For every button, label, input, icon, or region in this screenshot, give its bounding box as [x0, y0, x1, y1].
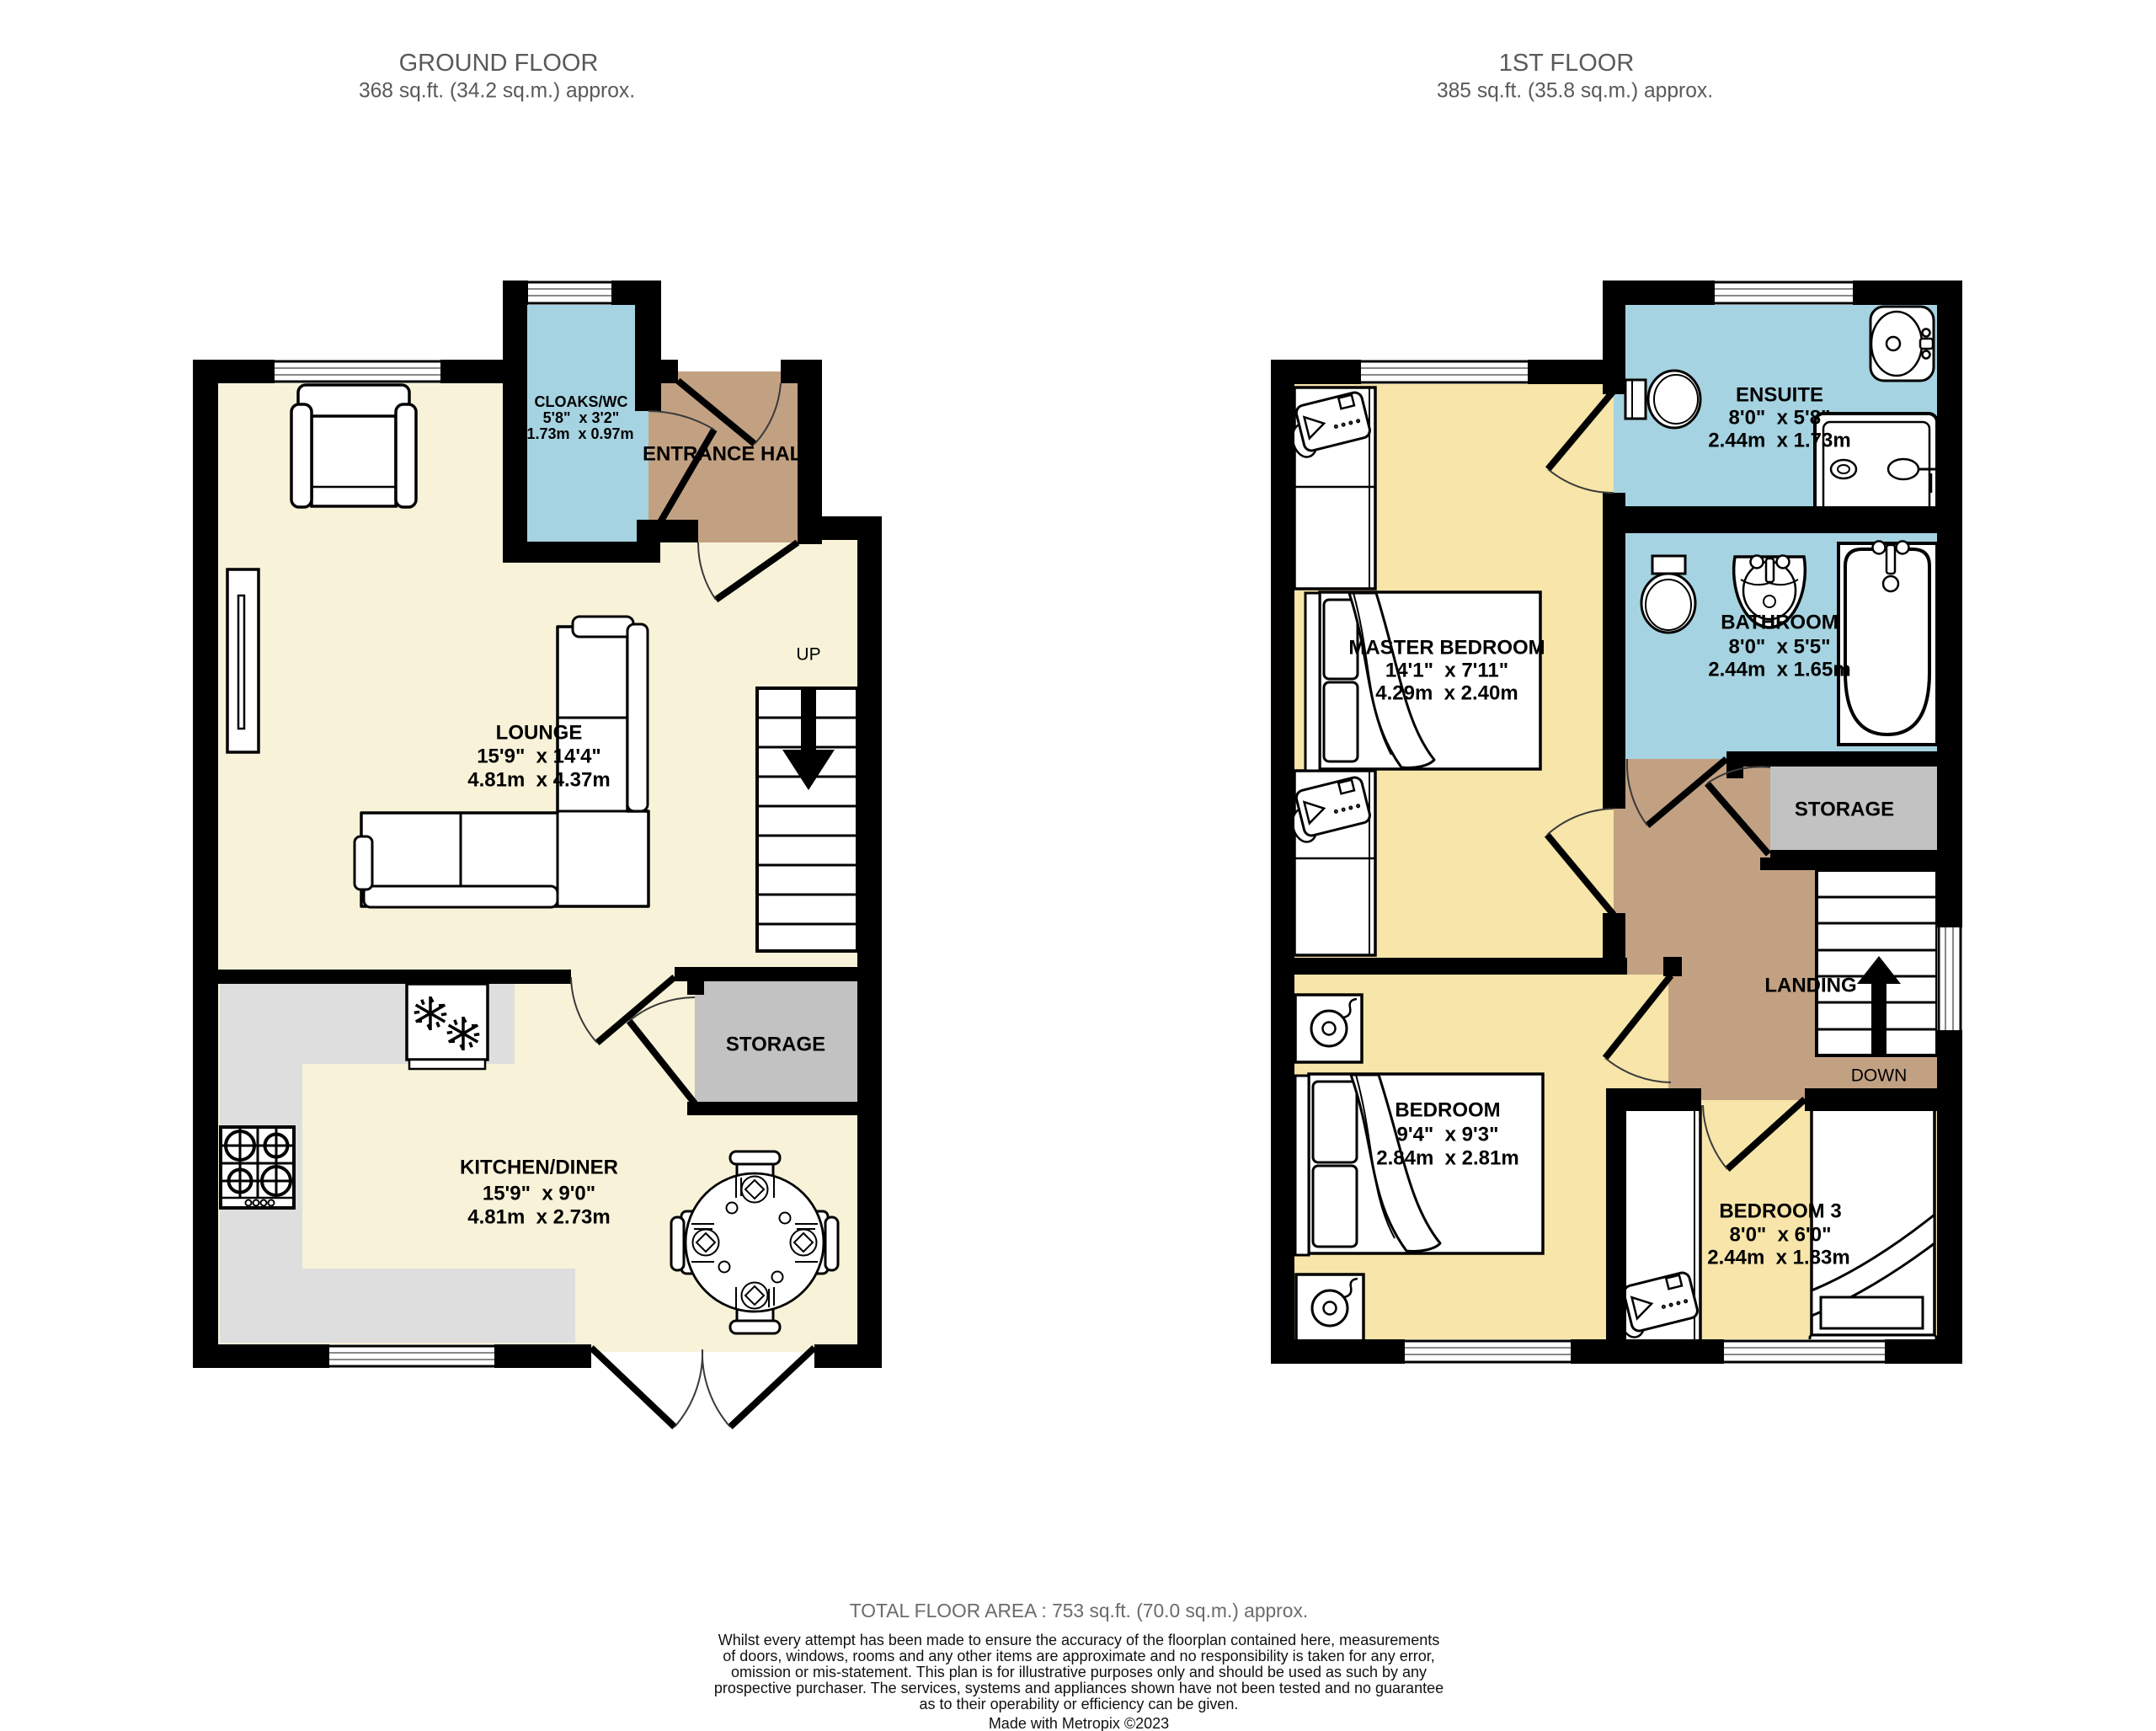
svg-text:4.81m x 2.73m: 4.81m x 2.73m — [467, 1206, 610, 1229]
svg-text:2.84m x 2.81m: 2.84m x 2.81m — [1376, 1147, 1518, 1170]
svg-text:STORAGE: STORAGE — [1795, 799, 1894, 821]
svg-text:prospective purchaser. The ser: prospective purchaser. The services, sys… — [714, 1680, 1444, 1696]
svg-text:omission or mis-statement. Thi: omission or mis-statement. This plan is … — [731, 1664, 1427, 1680]
svg-text:8'0" x 6'0": 8'0" x 6'0" — [1730, 1224, 1832, 1247]
svg-text:14'1" x 7'11": 14'1" x 7'11" — [1385, 660, 1508, 682]
svg-text:2.44m x 1.65m: 2.44m x 1.65m — [1708, 659, 1850, 681]
svg-text:ENSUITE: ENSUITE — [1736, 384, 1823, 407]
svg-text:DOWN: DOWN — [1851, 1066, 1908, 1086]
svg-text:KITCHEN/DINER: KITCHEN/DINER — [460, 1157, 618, 1179]
svg-text:of doors, windows, rooms and a: of doors, windows, rooms and any other i… — [723, 1648, 1434, 1664]
svg-text:LANDING: LANDING — [1764, 975, 1856, 997]
svg-text:9'4" x 9'3": 9'4" x 9'3" — [1397, 1124, 1499, 1146]
svg-text:UP: UP — [796, 645, 820, 665]
svg-text:LOUNGE: LOUNGE — [496, 722, 583, 745]
svg-text:TOTAL FLOOR AREA : 753 sq.ft.: TOTAL FLOOR AREA : 753 sq.ft. (70.0 sq.m… — [850, 1600, 1308, 1621]
svg-text:as to their operability or eff: as to their operability or efficiency ca… — [920, 1696, 1239, 1712]
svg-text:STORAGE: STORAGE — [726, 1034, 825, 1056]
svg-text:5'8" x 3'2": 5'8" x 3'2" — [543, 409, 620, 426]
svg-text:CLOAKS/WC: CLOAKS/WC — [535, 393, 628, 410]
svg-text:Whilst every attempt has been: Whilst every attempt has been made to en… — [718, 1632, 1439, 1648]
svg-text:BEDROOM: BEDROOM — [1395, 1099, 1500, 1122]
svg-text:1.73m x 0.97m: 1.73m x 0.97m — [526, 425, 633, 442]
svg-text:8'0" x 5'5": 8'0" x 5'5" — [1729, 636, 1831, 659]
svg-text:4.81m x 4.37m: 4.81m x 4.37m — [467, 769, 610, 792]
svg-text:8'0" x 5'8": 8'0" x 5'8" — [1729, 407, 1831, 430]
svg-text:368 sq.ft. (34.2 sq.m.) approx: 368 sq.ft. (34.2 sq.m.) approx. — [359, 80, 635, 103]
svg-text:GROUND FLOOR: GROUND FLOOR — [399, 50, 599, 77]
svg-text:2.44m x 1.83m: 2.44m x 1.83m — [1707, 1247, 1849, 1269]
svg-text:385 sq.ft. (35.8 sq.m.) approx: 385 sq.ft. (35.8 sq.m.) approx. — [1437, 80, 1713, 103]
svg-text:15'9" x 14'4": 15'9" x 14'4" — [477, 745, 601, 768]
svg-text:BATHROOM: BATHROOM — [1721, 612, 1838, 634]
svg-text:15'9" x 9'0": 15'9" x 9'0" — [483, 1183, 595, 1205]
svg-text:1ST FLOOR: 1ST FLOOR — [1499, 50, 1635, 77]
svg-text:BEDROOM 3: BEDROOM 3 — [1719, 1200, 1841, 1223]
svg-text:MASTER BEDROOM: MASTER BEDROOM — [1348, 637, 1545, 660]
svg-text:2.44m x 1.73m: 2.44m x 1.73m — [1708, 430, 1850, 452]
svg-text:ENTRANCE HALL: ENTRANCE HALL — [643, 443, 814, 466]
svg-text:Made with Metropix ©2023: Made with Metropix ©2023 — [989, 1715, 1169, 1731]
svg-text:4.29m x 2.40m: 4.29m x 2.40m — [1375, 682, 1518, 705]
